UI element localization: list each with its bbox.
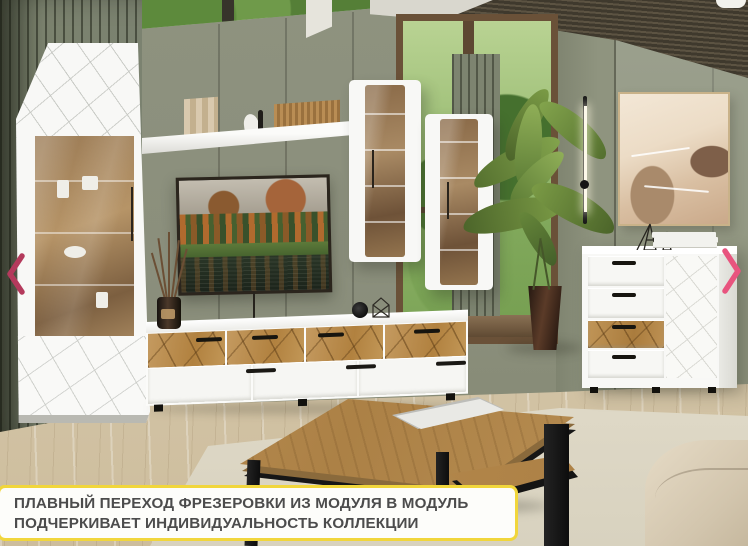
tv-landscape-picture (176, 174, 333, 295)
furniture-showroom-photo: ПЛАВНЫЙ ПЕРЕХОД ФРЕЗЕРОВКИ ИЗ МОДУЛЯ В М… (0, 0, 748, 546)
sofa-seam (655, 468, 748, 510)
decor-vase (57, 180, 69, 198)
tv-image-lake (181, 255, 330, 293)
wall-lamp-tube (584, 106, 587, 212)
decor-bowl (64, 246, 86, 258)
drawer-handle (612, 261, 636, 265)
wall-cabinet-1 (349, 80, 421, 262)
glass-vitrine (35, 136, 134, 336)
tv-stand (146, 298, 468, 414)
decor-clock (352, 302, 368, 318)
cabinet-plinth (16, 415, 150, 423)
tv-screen (179, 177, 330, 292)
vase-band (161, 309, 174, 319)
cabinet-foot (708, 387, 716, 393)
art-highlight (644, 185, 709, 193)
chest-door-milled (666, 256, 717, 378)
cabinet-foot (652, 387, 660, 393)
chevron-right-icon[interactable] (717, 246, 745, 296)
cabinet-foot (590, 387, 598, 393)
decor-dried-twigs (154, 232, 188, 304)
caption-line-1: ПЛАВНЫЙ ПЕРЕХОД ФРЕЗЕРОВКИ ИЗ МОДУЛЯ В М… (14, 494, 505, 514)
decor-terrarium (371, 297, 391, 318)
drawer-front-oak (306, 325, 383, 362)
twig (168, 232, 170, 304)
decor-vase-dark (157, 297, 181, 329)
drawer-front-oak (227, 328, 304, 365)
drawer-front-oak (385, 322, 466, 359)
wall-lamp-knob (580, 180, 589, 189)
caption-line-2: ПОДЧЕРКИВАЕТ ИНДИВИДУАЛЬНОСТЬ КОЛЛЕКЦИИ (14, 514, 505, 534)
art-highlight (631, 147, 690, 157)
magazine (653, 242, 717, 248)
caption-banner: ПЛАВНЫЙ ПЕРЕХОД ФРЕЗЕРОВКИ ИЗ МОДУЛЯ В М… (0, 485, 518, 541)
table-leg (544, 424, 569, 546)
cabinet-foot (154, 404, 163, 411)
sofa-corner (645, 440, 748, 546)
tall-display-cabinet (16, 43, 150, 423)
drawer-handle (612, 325, 636, 329)
cabinet-base-drawers (16, 336, 150, 416)
drawer-handle (612, 293, 636, 297)
chest-of-drawers (582, 246, 737, 388)
drawer-front-white (253, 360, 357, 400)
wall-cabinet-2 (425, 114, 493, 290)
drawer-handle (612, 355, 636, 359)
door-handle (372, 150, 374, 188)
abstract-wall-art (618, 92, 730, 226)
chevron-left-icon[interactable] (3, 252, 29, 296)
decor-box (82, 176, 98, 190)
drawer-front-white (148, 364, 251, 404)
decor-magazine-stack (652, 232, 716, 248)
cabinet-foot (298, 399, 307, 406)
glass-door (440, 119, 478, 284)
decor-cup (96, 292, 108, 308)
door-handle (447, 182, 449, 218)
ceiling-light (716, 0, 746, 8)
glass-door (365, 85, 405, 256)
cabinet-foot (446, 393, 455, 400)
door-handle (131, 187, 133, 240)
